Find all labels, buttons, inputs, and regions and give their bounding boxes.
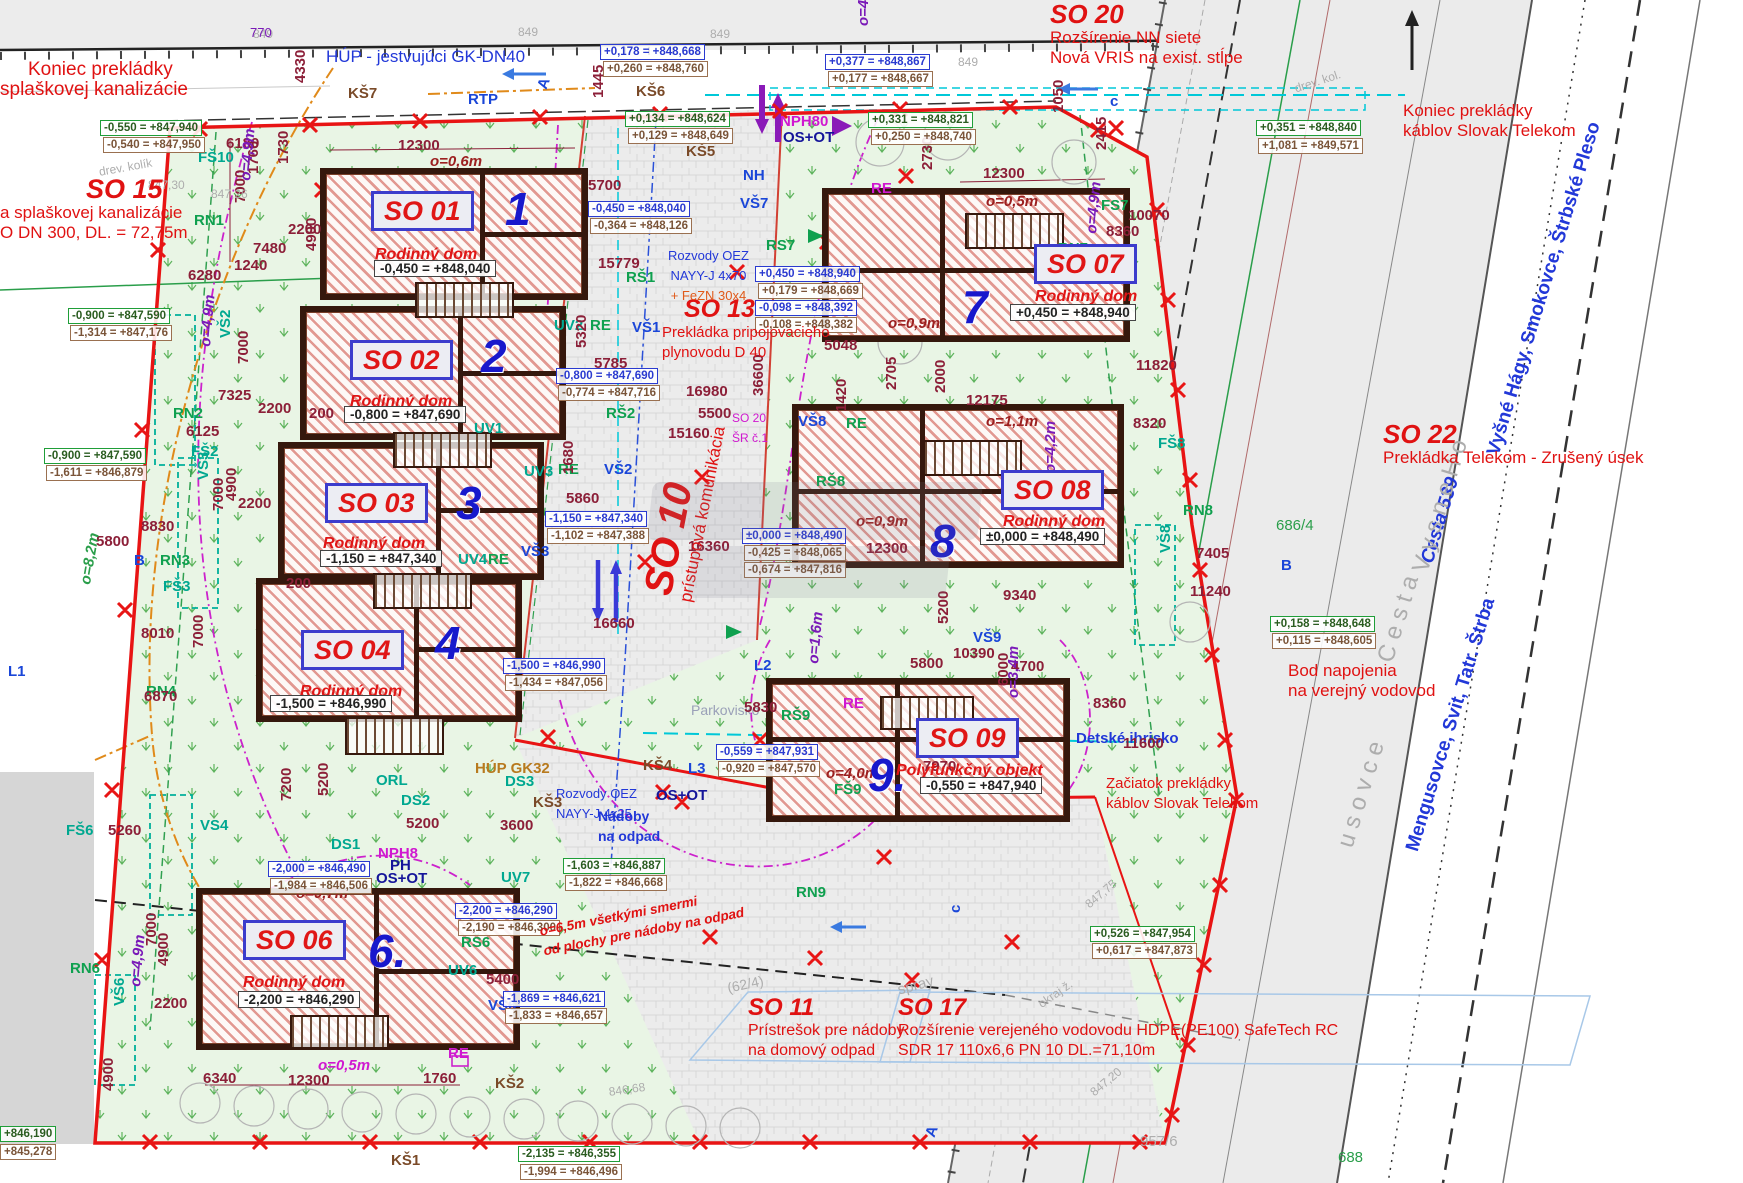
fs7-label: FS7 — [1101, 198, 1129, 214]
so03-number: 3 — [456, 480, 482, 526]
so04-number: 4 — [435, 620, 461, 666]
so02-elevation: -0,800 = +847,690 — [344, 406, 466, 423]
elevation-box: +1,081 = +849,571 — [1258, 138, 1363, 154]
r6-label: RŠ6 — [461, 935, 490, 951]
dim-label: 11240 — [1190, 584, 1231, 600]
dim-label: 3600 — [500, 818, 533, 834]
v2-label: VŠ2 — [604, 462, 632, 478]
dim-label: 1730 — [276, 131, 292, 164]
elevation-box: +0,331 = +848,821 — [868, 112, 973, 128]
dim-label: o=4,2m — [856, 0, 872, 26]
l2-label: L2 — [754, 658, 772, 674]
elevation-box: +0,115 = +848,605 — [1272, 633, 1376, 649]
re-label: RE — [590, 318, 611, 334]
l1-label: L1 — [8, 664, 26, 680]
note-so11: SO 11 Prístrešok pre nádoby na domový od… — [748, 994, 905, 1061]
note-hup: HÚP - jestvujúci GK-DN40 — [326, 48, 525, 66]
note-so17: SO 17 Rozšírenie verejeného vodovodu HDP… — [898, 994, 1338, 1061]
stair-glyph — [290, 1015, 389, 1049]
elevation-box: -1,822 = +846,668 — [565, 875, 667, 891]
note-koniec-kanalizacie: Koniec prekládky splaškovej kanalizácie — [0, 60, 188, 100]
k2-label: KŠ2 — [495, 1076, 524, 1092]
rn1-label: RN1 — [194, 213, 224, 229]
dim-label: 4900 — [156, 933, 172, 966]
re-label: RE — [871, 181, 892, 197]
k6-label: KŠ6 — [636, 84, 665, 100]
elevation-box: -0,774 = +847,716 — [558, 385, 660, 401]
elevation-box: -0,559 = +847,931 — [716, 744, 818, 760]
so07-label: SO 07 — [1034, 244, 1137, 284]
note-nadoby: Nádoby na odpad — [598, 806, 660, 846]
dim-label: o=4,2m — [1043, 421, 1059, 473]
elevation-box: -2,135 = +846,355 — [518, 1146, 620, 1162]
dim-label: 5260 — [108, 823, 141, 839]
elevation-box: -0,540 = +847,950 — [103, 137, 205, 153]
dim-label: o=0,5m — [986, 194, 1038, 210]
uv3-label: UV3 — [524, 464, 553, 480]
v2-label: VŠ2 — [218, 310, 234, 338]
dim-label: 5830 — [744, 700, 777, 716]
os+ot-label: OS+OT — [783, 130, 834, 146]
elevation-box: +0,177 = +848,667 — [828, 71, 933, 87]
dim-label: 8830 — [141, 519, 174, 535]
elevation-box: -1,984 = +846,506 — [270, 878, 372, 894]
gray-label: 847,26 — [211, 188, 248, 201]
note-rozvody-70: Rozvody OEZ NAYY-J 4x70 + FeZN 30x4 — [668, 246, 749, 306]
dim-label: 12175 — [966, 393, 1008, 409]
dim-label: 7325 — [218, 388, 251, 404]
dim-label: 16660 — [593, 616, 635, 632]
f9-label: FŠ9 — [834, 782, 862, 798]
so08-label: SO 08 — [1001, 470, 1104, 510]
stair-glyph — [393, 432, 492, 468]
dim-label: 15160 — [668, 426, 710, 442]
so01-label: SO 01 — [371, 191, 474, 231]
so03-elevation: -1,150 = +847,340 — [320, 550, 442, 567]
dim-label: 2415 — [1094, 117, 1110, 150]
re-label: RE — [843, 696, 864, 712]
so06-elevation: -2,200 = +846,290 — [238, 991, 360, 1008]
elevation-box: -0,800 = +847,690 — [556, 368, 658, 384]
dim-label: 8360 — [1106, 224, 1139, 240]
gray-label: 770 — [250, 26, 272, 40]
dim-label: 1420 — [834, 379, 850, 412]
elevation-box: +0,526 = +847,954 — [1090, 926, 1195, 942]
dim-label: 5800 — [910, 656, 943, 672]
elevation-box: -1,869 = +846,621 — [503, 991, 605, 1007]
b-label: B — [134, 553, 145, 569]
elevation-box: -1,102 = +847,388 — [547, 528, 649, 544]
elevation-box: +0,129 = +848,649 — [628, 128, 733, 144]
dim-label: 5400 — [486, 972, 519, 988]
dim-label: 200 — [309, 406, 334, 422]
rn6-label: RN6 — [70, 961, 100, 977]
dim-label: 2705 — [884, 357, 900, 390]
so06-number: 6. — [368, 928, 406, 974]
dim-label: 6125 — [186, 424, 219, 440]
dim-label: 5320 — [574, 315, 590, 348]
dim-label: 7000 — [211, 478, 227, 511]
so07-number: 7 — [962, 284, 988, 330]
os+ot-label: OS+OT — [376, 871, 427, 887]
r1-label: RŠ1 — [626, 270, 655, 286]
elevation-box: +0,260 = +848,760 — [603, 61, 708, 77]
dim-label: 5500 — [698, 406, 731, 422]
so01-number: 1 — [505, 186, 531, 232]
rn8-label: RN8 — [1183, 503, 1213, 519]
ds1-label: DS1 — [331, 837, 360, 853]
vs4-label: VS4 — [200, 818, 228, 834]
stair-glyph — [345, 717, 444, 755]
uv4-label: UV4 — [458, 552, 487, 568]
note-bod-napojenia: Bod napojenia na verejný vodovod — [1288, 661, 1435, 701]
hpgk32-label: HÚP GK32 — [475, 761, 550, 777]
dim-label: 15779 — [598, 256, 640, 272]
elevation-box: -1,314 = +847,176 — [70, 325, 172, 341]
dim-label: 2200 — [238, 496, 271, 512]
dim-label: 4900 — [101, 1058, 117, 1091]
elevation-box: -0,920 = +847,570 — [718, 761, 820, 777]
gray-label: 849 — [710, 28, 730, 41]
stair-glyph — [373, 573, 472, 609]
v8-label: VŠ8 — [1158, 525, 1174, 553]
note-so20: SO 20 Rozšírenie NN siete Nová VRIS na e… — [1050, 1, 1243, 68]
re-label: RE — [488, 552, 509, 568]
dim-label: o=0,9m — [888, 316, 940, 332]
elevation-box: -2,000 = +846,490 — [268, 861, 370, 877]
so06-label: SO 06 — [243, 920, 346, 960]
k1-label: KŠ1 — [391, 1153, 420, 1169]
dim-label: o=1,1m — [986, 414, 1038, 430]
gray-label: 688 — [1338, 1150, 1363, 1166]
dim-label: 4330 — [293, 50, 309, 83]
elevation-box: -1,500 = +846,990 — [503, 658, 605, 674]
dim-label: 6870 — [144, 689, 177, 705]
elevation-box: +0,377 = +848,867 — [825, 54, 930, 70]
elevation-box: +0,134 = +848,624 — [625, 111, 730, 127]
l3-label: L3 — [688, 761, 706, 777]
dim-label: 1760 — [423, 1071, 456, 1087]
dim-label: 8360 — [1093, 696, 1126, 712]
dim-label: 1680 — [561, 441, 577, 474]
gray-label: 849 — [958, 56, 978, 69]
dim-label: 9340 — [1003, 588, 1036, 604]
dim-label: 7000 — [191, 615, 207, 648]
building-so01 — [320, 168, 588, 300]
note-so13: SO 13 Prekládka pripojovacieho plynovodu… — [662, 296, 830, 363]
stair-glyph — [415, 282, 514, 318]
dim-label: 7480 — [253, 241, 286, 257]
uv7-label: UV7 — [501, 870, 530, 886]
nh-label: NH — [743, 168, 765, 184]
v7-label: VŠ7 — [740, 196, 768, 212]
dim-label: 2000 — [933, 360, 949, 393]
c-label: c — [1110, 94, 1118, 110]
so09-label: SO 09 — [916, 718, 1019, 758]
gray-label: 686/4 — [1276, 518, 1314, 534]
dim-label: o=0,6m — [430, 154, 482, 170]
dim-label: 2200 — [258, 401, 291, 417]
so04-label: SO 04 — [301, 630, 404, 670]
gray-label: 957/6 — [1140, 1134, 1178, 1150]
site-plan: SO 01 1 Rodinný dom -0,450 = +848,040 SO… — [0, 0, 1743, 1183]
elevation-box: -2,200 = +846,290 — [455, 903, 557, 919]
elevation-box: +845,278 — [0, 1144, 56, 1160]
uv1-label: UV1 — [474, 421, 503, 437]
orl-label: ORL — [376, 773, 408, 789]
watermark — [687, 546, 950, 598]
elevation-box: +0,617 = +847,873 — [1092, 943, 1197, 959]
so08-elevation: ±0,000 = +848,490 — [980, 528, 1105, 545]
dim-label: 1050 — [1051, 80, 1067, 113]
elevation-box: -1,603 = +846,887 — [563, 858, 665, 874]
elevation-box: -0,450 = +848,040 — [588, 201, 690, 217]
note-koniec-telekom: Koniec prekládky káblov Slovak Telekom — [1403, 101, 1576, 141]
dim-label: 10390 — [953, 646, 995, 662]
dim-label: 5860 — [566, 491, 599, 507]
dim-label: 12300 — [398, 138, 440, 154]
dim-label: o=3,4m — [1006, 646, 1022, 698]
so07-elevation: +0,450 = +848,940 — [1010, 304, 1136, 321]
elevation-box: +0,178 = +848,668 — [600, 44, 705, 60]
dim-label: 7200 — [279, 768, 295, 801]
dim-label: 7405 — [1196, 546, 1229, 562]
r9-label: RŠ9 — [781, 708, 810, 724]
dim-label: 8010 — [141, 626, 174, 642]
note-sr20: SO 20 ŠR č.1 — [732, 408, 768, 448]
f8-label: FŠ8 — [1158, 436, 1186, 452]
k4-label: KŠ4 — [643, 758, 672, 774]
so02-label: SO 02 — [350, 340, 453, 380]
dim-label: 16980 — [686, 384, 728, 400]
watermark — [647, 482, 983, 540]
note-zaciatok: Začiatok prekládky káblov Slovak Telekom — [1106, 774, 1258, 814]
so02-number: 2 — [481, 333, 507, 379]
so04-elevation: -1,500 = +846,990 — [270, 695, 392, 712]
elevation-box: -0,550 = +847,940 — [100, 120, 202, 136]
dim-label: 2200 — [154, 996, 187, 1012]
elevation-box: -1,833 = +846,657 — [505, 1008, 607, 1024]
ds2-label: DS2 — [401, 793, 430, 809]
elevation-box: -0,364 = +848,126 — [590, 218, 692, 234]
dim-label: 10070 — [1128, 208, 1170, 224]
b-label: B — [1281, 558, 1292, 574]
dim-label: 1240 — [234, 258, 267, 274]
rn9-label: RN9 — [796, 885, 826, 901]
dim-label: 7000 — [236, 331, 252, 364]
elevation-box: +0,450 = +848,940 — [755, 266, 860, 282]
dim-label: 5200 — [406, 816, 439, 832]
elevation-box: +0,250 = +848,740 — [871, 129, 976, 145]
k7-label: KŠ7 — [348, 86, 377, 102]
f6-label: FŠ6 — [66, 823, 94, 839]
dim-label: 12300 — [983, 166, 1025, 182]
re-label: RE — [448, 1046, 469, 1062]
dim-label: 4900 — [304, 218, 320, 251]
r2-label: RŠ2 — [606, 406, 635, 422]
v9-label: VŠ9 — [973, 630, 1001, 646]
rtp-label: RTP — [468, 92, 498, 108]
dim-label: 8320 — [1133, 416, 1166, 432]
so06-type: Rodinný dom — [243, 974, 345, 992]
v3-label: VŠ3 — [196, 452, 212, 480]
note-so22: SO 22 Prekládka Telekom - Zrušený úsek — [1383, 421, 1643, 468]
dim-label: 5200 — [316, 763, 332, 796]
dim-label: 6280 — [188, 268, 221, 284]
v3-label: VŠ3 — [521, 544, 549, 560]
k5-label: KŠ5 — [686, 144, 715, 160]
elevation-box: +846,190 — [0, 1126, 56, 1142]
elevation-box: -1,150 = +847,340 — [545, 511, 647, 527]
v6-label: VŠ6 — [112, 978, 128, 1006]
v1-label: VŠ1 — [632, 320, 660, 336]
os+ot-label: OS+OT — [656, 788, 707, 804]
elevation-box: -1,434 = +847,056 — [505, 675, 607, 691]
f3-label: FŠ3 — [163, 579, 191, 595]
dim-label: 5700 — [588, 178, 621, 194]
gray-label: 849 — [518, 26, 538, 39]
note-so15: SO 15 a splaškovej kanalizácie O DN 300,… — [0, 176, 188, 243]
dim-label: 12300 — [288, 1073, 330, 1089]
elevation-box: +0,351 = +848,840 — [1256, 120, 1361, 136]
so01-elevation: -0,450 = +848,040 — [374, 260, 496, 277]
elevation-box: -0,900 = +847,590 — [68, 308, 170, 324]
v8-label: VŠ8 — [798, 414, 826, 430]
dim-label: 11820 — [1136, 358, 1177, 374]
nph80-label: NPH80 — [780, 114, 828, 130]
dim-label: 11600 — [1123, 736, 1164, 752]
rn3-label: RN3 — [160, 553, 190, 569]
re-label: RE — [846, 416, 867, 432]
c-label: c — [948, 905, 964, 913]
rs7-label: RS7 — [766, 238, 795, 254]
rn2-label: RN2 — [173, 406, 203, 422]
dim-label: 200 — [286, 576, 311, 592]
uv6-label: UV6 — [448, 963, 477, 979]
elevation-box: -1,611 = +846,879 — [46, 465, 147, 481]
elevation-box: -1,994 = +846,496 — [520, 1164, 622, 1180]
so09-elevation: -0,550 = +847,940 — [920, 777, 1042, 794]
elevation-box: -0,900 = +847,590 — [44, 448, 146, 464]
dim-label: 6340 — [203, 1071, 236, 1087]
so03-label: SO 03 — [325, 483, 428, 523]
elevation-box: +0,158 = +848,648 — [1270, 616, 1375, 632]
